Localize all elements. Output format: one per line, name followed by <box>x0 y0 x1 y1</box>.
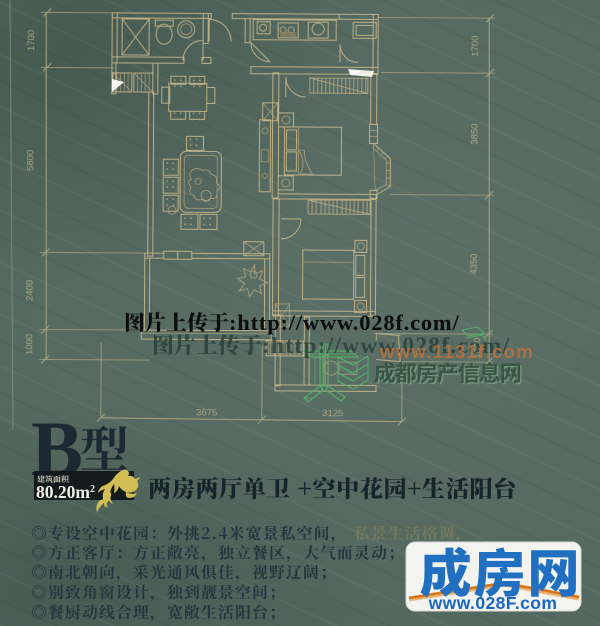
svg-text:3675: 3675 <box>196 407 217 418</box>
svg-text:1700: 1700 <box>470 35 481 56</box>
svg-text:3850: 3850 <box>469 123 480 144</box>
svg-text:4350: 4350 <box>469 253 480 274</box>
svg-text::http://www.028f.com/: :http://www.028f.com/ <box>229 310 460 335</box>
svg-text:3125: 3125 <box>322 408 343 419</box>
svg-text:www.028F.com: www.028F.com <box>428 593 558 613</box>
svg-text:2400: 2400 <box>25 280 36 301</box>
svg-text:1700: 1700 <box>26 30 37 51</box>
svg-text:5800: 5800 <box>25 150 36 171</box>
svg-text:1000: 1000 <box>24 334 35 355</box>
svg-text:80.20m2: 80.20m2 <box>36 482 95 502</box>
svg-text:www.1131f.com: www.1131f.com <box>379 341 534 362</box>
